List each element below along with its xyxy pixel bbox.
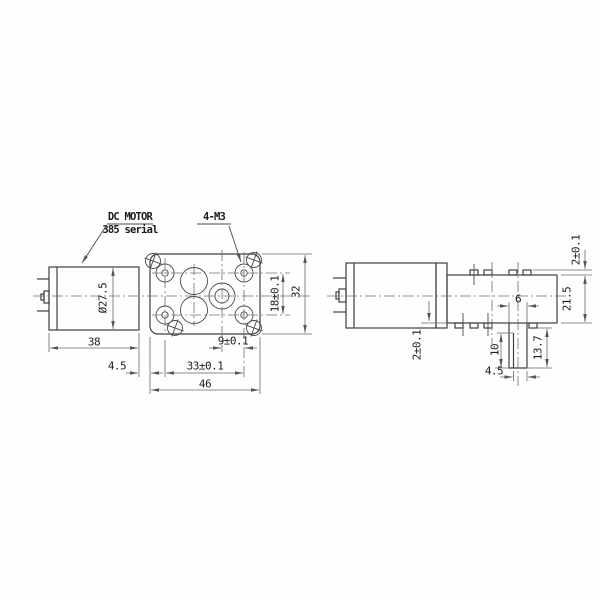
dim-hole-spacing-v: 18±0.1 — [269, 276, 282, 313]
dim-shaft-flat-length: 10 — [489, 344, 502, 356]
motor-label-line1: DC MOTOR — [108, 211, 154, 223]
dim-gearbox-height: 21.5 — [561, 287, 574, 312]
center-lines-front — [33, 250, 312, 377]
gearbox-face-plate — [150, 254, 260, 334]
dim-motor-diameter: Ø27.5 — [97, 283, 110, 314]
motor-body-front — [37, 267, 139, 330]
dim-motor-length: 38 — [88, 336, 100, 349]
motor-callout: DC MOTOR 385 serial — [82, 211, 158, 263]
dim-plate-width: 46 — [199, 378, 211, 391]
side-view: 6 2±0.1 21.5 2±0.1 10 13.7 4.5 — [327, 235, 592, 386]
front-view: Ø27.5 38 4.5 33±0.1 9±0.1 46 18±0.1 32 D… — [33, 211, 312, 394]
dimensions-front — [50, 255, 305, 390]
screw-tabs-bottom — [455, 323, 537, 328]
dim-shaft-diameter: 6 — [515, 293, 521, 306]
dim-shaft-flat-width: 4.5 — [485, 365, 503, 378]
dim-shaft-length: 13.7 — [532, 336, 545, 361]
screw-tabs-top — [470, 270, 531, 275]
dim-shaft-to-hole: 9±0.1 — [218, 335, 249, 348]
dim-tab-protrusion: 2±0.1 — [570, 235, 583, 266]
dim-hole-spacing-h: 33±0.1 — [187, 360, 224, 373]
dim-motor-offset: 2±0.1 — [411, 330, 424, 361]
dimensions-side — [429, 250, 585, 377]
motor-label-line2: 385 serial — [102, 224, 158, 236]
engineering-drawing: Ø27.5 38 4.5 33±0.1 9±0.1 46 18±0.1 32 D… — [0, 0, 600, 600]
motor-body-side — [333, 263, 447, 328]
holes-label: 4-M3 — [203, 211, 226, 223]
drawing-canvas: Ø27.5 38 4.5 33±0.1 9±0.1 46 18±0.1 32 D… — [0, 0, 600, 600]
dim-plate-height: 32 — [290, 286, 303, 298]
dim-plate-offset: 4.5 — [108, 360, 126, 373]
rear-shaft-stub — [44, 291, 49, 303]
rear-shaft-stub-side — [339, 289, 346, 302]
gearbox-side — [447, 264, 557, 336]
